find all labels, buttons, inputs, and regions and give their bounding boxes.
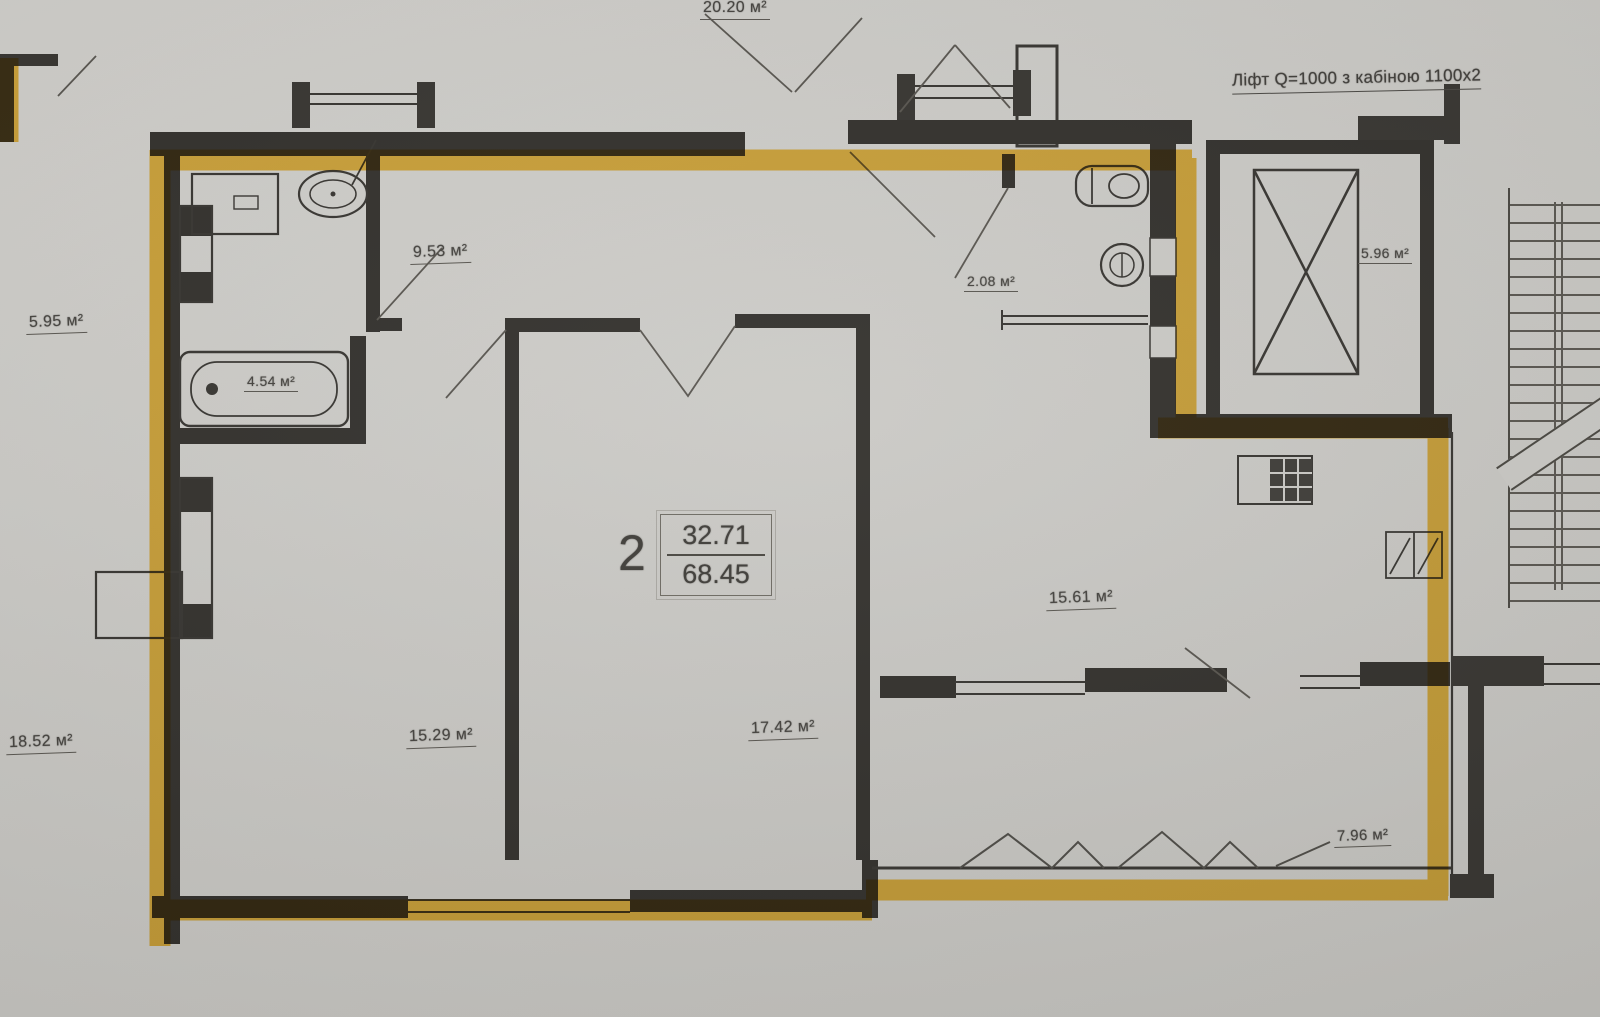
area-label-living: 17.42 м²	[748, 719, 819, 741]
plan-linework	[0, 0, 1600, 1017]
stair-rail	[1554, 202, 1563, 590]
apartment-wall-outlines	[96, 206, 1452, 878]
stair-break-line	[1496, 389, 1600, 491]
staircase	[1508, 188, 1600, 608]
apartment-number: 2	[618, 524, 646, 582]
apartment-living-area: 32.71	[667, 520, 765, 556]
area-label-neighbor-left-lower: 18.52 м²	[6, 733, 77, 755]
area-label-wc: 2.08 м²	[964, 274, 1018, 292]
apartment-walls	[150, 120, 1452, 944]
windows	[408, 676, 1360, 912]
apartment-highlight	[8, 58, 1448, 946]
electrical-panel-icon	[1238, 456, 1312, 504]
apartment-total-area: 68.45	[667, 556, 765, 590]
wc-sink-icon	[1101, 244, 1143, 286]
balcony-glazing	[960, 832, 1330, 868]
area-label-neighbor-left-upper: 5.95 м²	[26, 313, 87, 335]
area-label-neighbor-top: 20.20 м²	[700, 0, 770, 20]
toilet-icon	[1076, 166, 1148, 206]
floor-plan-scan: Ліфт Q=1000 з кабіною 1100х2 20.20 м² 5.…	[0, 0, 1600, 1017]
wc-shelf	[1002, 310, 1148, 330]
area-label-bedroom: 15.29 м²	[406, 727, 477, 749]
apartment-area-box: 32.71 68.45	[660, 514, 772, 596]
elevator-shaft	[1206, 140, 1434, 414]
area-label-balcony: 7.96 м²	[1334, 827, 1392, 848]
area-label-kitchen: 15.61 м²	[1046, 589, 1117, 611]
area-label-elevator-shaft: 5.96 м²	[1358, 246, 1412, 264]
area-label-hall: 9.53 м²	[410, 243, 471, 265]
area-label-bathroom: 4.54 м²	[244, 374, 298, 392]
